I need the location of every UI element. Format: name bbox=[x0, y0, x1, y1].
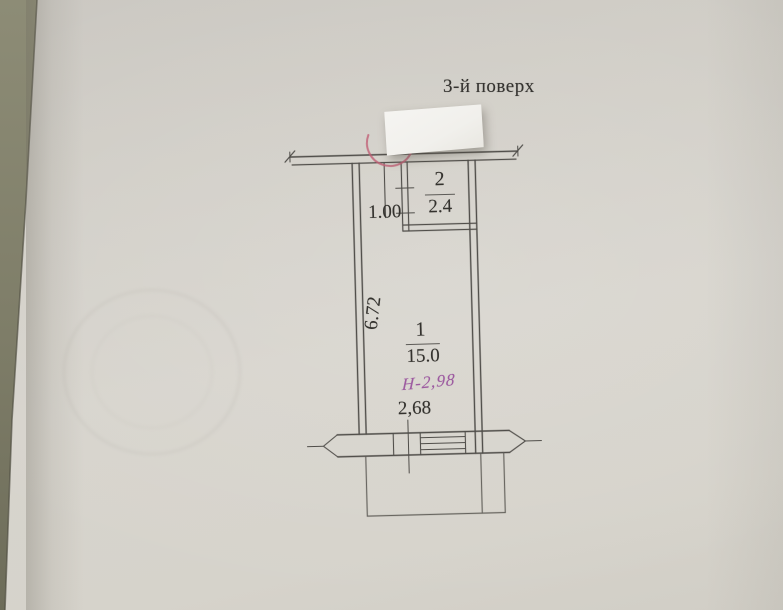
room-1-number: 1 bbox=[400, 318, 441, 341]
room-2-number: 2 bbox=[422, 168, 457, 191]
floor-plan-linework bbox=[284, 139, 544, 545]
floor-plan: 1.00 2 2.4 6.72 1 15.0 Н-2,98 2,68 bbox=[284, 139, 544, 545]
balcony-divider bbox=[481, 453, 483, 513]
dimension-corridor-width: 1.00 bbox=[361, 202, 402, 224]
wall-break-right bbox=[509, 430, 542, 453]
right-wall bbox=[468, 160, 483, 453]
dimension-balcony-opening: 2,68 bbox=[390, 398, 439, 420]
photographed-floor-plan-page: { "title": "3-й поверх", "plan": { "room… bbox=[0, 0, 783, 610]
wall-break-left bbox=[307, 435, 338, 458]
window-symbol bbox=[393, 432, 466, 456]
embossed-stamp bbox=[64, 290, 240, 454]
balcony-outline bbox=[366, 453, 506, 517]
room-1-area: 15.0 bbox=[401, 346, 446, 368]
room-2-area: 2.4 bbox=[421, 197, 460, 219]
floor-title: 3-й поверх bbox=[443, 76, 573, 98]
dimension-line-2-68 bbox=[408, 420, 409, 473]
